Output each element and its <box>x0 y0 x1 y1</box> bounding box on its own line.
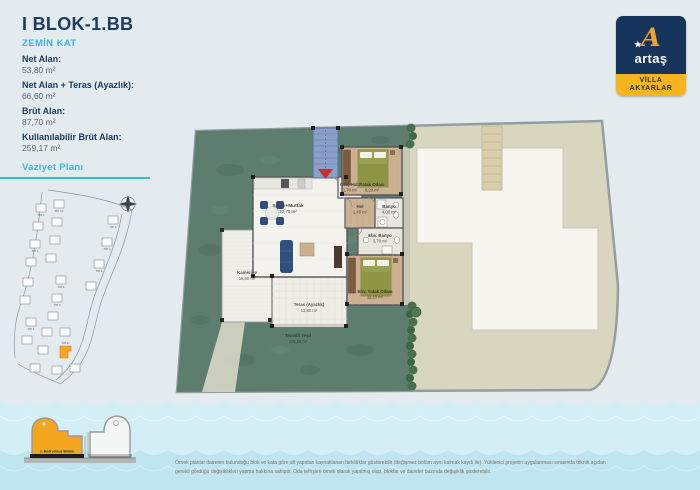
logo-brand-text: artaş <box>634 51 667 66</box>
room-area-ebv-yatak: 11,10 m² <box>367 295 384 300</box>
area-value: 53,80 m² <box>22 65 222 75</box>
disclaimer-line1: Örnek planlar dairenin bulunduğu blok ve… <box>175 459 635 468</box>
tree-icon <box>411 307 421 317</box>
artas-logo: A★ artaş VİLLA AKYARLAR <box>616 16 686 96</box>
room-area-kameriye: 18,60 m² <box>239 276 256 281</box>
room-label-ebv-banyo: Ebv. Banyo <box>368 233 392 238</box>
area-row: Net Alan + Teras (Ayazlık): 66,60 m² <box>22 80 222 101</box>
logo-project-band: VİLLA AKYARLAR <box>616 74 686 96</box>
site-highlighted-unit <box>60 346 71 358</box>
svg-text:TİP 1: TİP 1 <box>31 248 38 253</box>
disclaimer: Örnek planlar dairenin bulunduğu blok ve… <box>175 459 635 476</box>
room-label-yatak: Yatak Odası <box>360 182 385 187</box>
svg-text:TİP 3: TİP 3 <box>53 302 60 307</box>
floor-label: ZEMİN KAT <box>22 38 222 49</box>
sink-icon <box>298 179 305 188</box>
shower-icon <box>382 246 392 254</box>
logo-a-monogram: A★ <box>641 25 660 50</box>
logo-upper: A★ artaş <box>616 16 686 74</box>
section-label: 1. Bodrumsuz Bölüm <box>40 450 74 454</box>
area-label: Net Alan + Teras (Ayazlık): <box>22 80 222 90</box>
room-area-yesil: 116,28 m² <box>289 339 308 344</box>
wardrobe <box>349 258 356 293</box>
svg-text:TİP 2: TİP 2 <box>109 224 116 229</box>
section-villa-adjacent <box>88 416 132 458</box>
section-drawing: 1. Bodrumsuz Bölüm <box>24 402 136 474</box>
room-label-yesil: Temsili Yeşil <box>285 333 311 338</box>
tv-unit <box>334 246 342 268</box>
room-label-hol: Hol <box>356 204 363 209</box>
logo-project-line1: VİLLA <box>640 77 663 85</box>
floor-plan-drawing: Salon+Mutfak 22,70 m² Giriş Holü 1,70 m²… <box>150 100 650 410</box>
star-icon: ★ <box>634 40 641 48</box>
svg-text:TİP 5: TİP 5 <box>57 284 64 289</box>
room-area-giris: 1,70 m² <box>343 188 358 193</box>
room-label-teras: Teras (Ayazlık) <box>294 302 325 307</box>
room-salon <box>253 177 347 277</box>
room-label-giris: Giriş Holü <box>340 182 360 187</box>
room-label-kameriye: Kameriye <box>237 270 257 275</box>
site-plan-title: Vaziyet Planı <box>22 162 83 173</box>
room-area-salon: 22,70 m² <box>279 209 297 214</box>
room-label-banyo: Banyo <box>382 204 396 209</box>
site-plan-drawing: TİP 7 TİP 10 TİP 2 TİP 1 TİP 4 TİP 6 TİP… <box>8 188 148 388</box>
upper-stairs-strip <box>482 126 502 190</box>
entry-stairs <box>313 128 338 179</box>
svg-text:TİP 10: TİP 10 <box>55 208 64 213</box>
disclaimer-line2: gerekli gördüğü değişiklikleri yapma hak… <box>175 468 635 477</box>
svg-text:TİP 7: TİP 7 <box>37 212 44 217</box>
svg-text:TİP 4: TİP 4 <box>103 246 110 251</box>
brochure-page: I BLOK-1.BB ZEMİN KAT Net Alan: 53,80 m²… <box>0 0 700 490</box>
section-gap-hatch <box>85 432 88 457</box>
room-area-banyo: 4,00 m² <box>382 210 397 215</box>
logo-project-line2: AKYARLAR <box>630 85 673 93</box>
area-label: Net Alan: <box>22 54 222 64</box>
sink-icon <box>363 237 369 243</box>
stove-icon <box>281 179 289 188</box>
page-title: I BLOK-1.BB <box>22 14 222 35</box>
ground-strip <box>24 458 136 463</box>
sofa <box>280 240 293 273</box>
area-row: Net Alan: 53,80 m² <box>22 54 222 75</box>
svg-text:TİP 6: TİP 6 <box>95 268 102 273</box>
wardrobe <box>344 150 351 185</box>
site-plan-rule <box>0 177 150 179</box>
svg-text:TİP 1: TİP 1 <box>27 326 34 331</box>
washer-icon <box>378 217 387 227</box>
coffee-table <box>300 243 314 256</box>
section-villa-highlighted: 1. Bodrumsuz Bölüm <box>30 418 84 458</box>
room-area-ebv-banyo: 3,70 m² <box>373 239 388 244</box>
room-area-yatak: 9,20 m² <box>365 188 380 193</box>
svg-text:TİP 9: TİP 9 <box>61 340 68 345</box>
room-area-teras: 12,80 m² <box>301 308 318 313</box>
compass-icon <box>119 195 137 213</box>
room-area-hol: 1,40 m² <box>353 210 368 215</box>
toilet-icon <box>395 237 400 244</box>
room-label-ebv-yatak: Ebv. Yatak Odası <box>358 289 393 294</box>
